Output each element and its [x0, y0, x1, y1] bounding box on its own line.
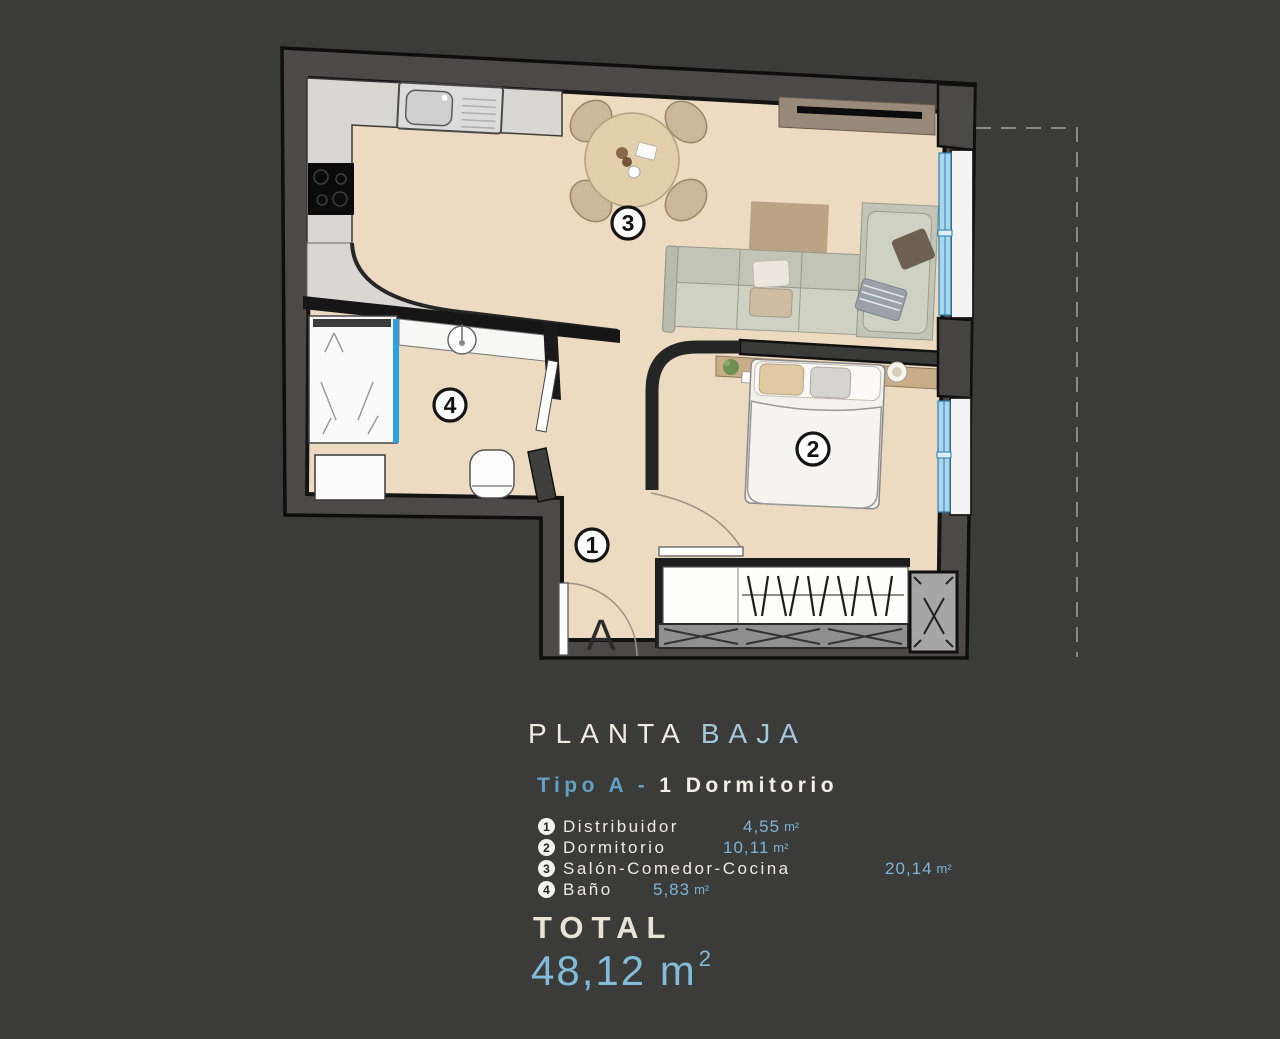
- legend-row-dormitorio: 2 Dormitorio 10,11 m²: [538, 837, 952, 858]
- bathroom-cabinet: [315, 455, 385, 500]
- label-salon: 3: [622, 210, 635, 236]
- unit-type-letter: A: [586, 611, 616, 660]
- top-right-pier: [938, 84, 975, 150]
- legend-badge-1: 1: [538, 818, 555, 835]
- total-label: TOTAL: [533, 910, 673, 946]
- page: A: [0, 0, 1280, 1039]
- label-distribuidor: 1: [586, 532, 599, 558]
- rug: [749, 201, 829, 253]
- shower: [309, 316, 399, 443]
- legend-row-salon: 3 Salón-Comedor-Cocina 20,14 m²: [538, 858, 952, 879]
- plan-subtitle: Tipo A -1 Dormitorio: [537, 774, 838, 798]
- property-boundary-dashed-line: [976, 128, 1077, 657]
- plan-title-accent: BAJA: [701, 718, 807, 749]
- wardrobe: [655, 558, 910, 648]
- toilet: [470, 450, 514, 498]
- room-legend: 1 Distribuidor 4,55 m² 2 Dormitorio 10,1…: [538, 816, 952, 900]
- plan-title-main: PLANTA: [528, 718, 689, 749]
- shaft: [910, 572, 957, 652]
- total-value: 48,12 m2: [531, 947, 711, 995]
- label-dormitorio: 2: [807, 436, 820, 462]
- legend-badge-2: 2: [538, 839, 555, 856]
- cooktop: [308, 163, 354, 215]
- kitchen-sink: [397, 82, 503, 133]
- subtitle-rest: 1 Dormitorio: [659, 774, 838, 797]
- subtitle-type: Tipo A -: [537, 774, 649, 797]
- legend-badge-3: 3: [538, 860, 555, 877]
- plan-title: PLANTABAJA: [528, 718, 807, 750]
- legend-badge-4: 4: [538, 881, 555, 898]
- legend-row-distribuidor: 1 Distribuidor 4,55 m²: [538, 816, 952, 837]
- label-bano: 4: [444, 392, 457, 418]
- legend-row-bano: 4 Baño 5,83 m²: [538, 879, 952, 900]
- window-pier: [938, 318, 972, 398]
- living-window: [938, 150, 973, 318]
- bedroom-window: [937, 398, 971, 515]
